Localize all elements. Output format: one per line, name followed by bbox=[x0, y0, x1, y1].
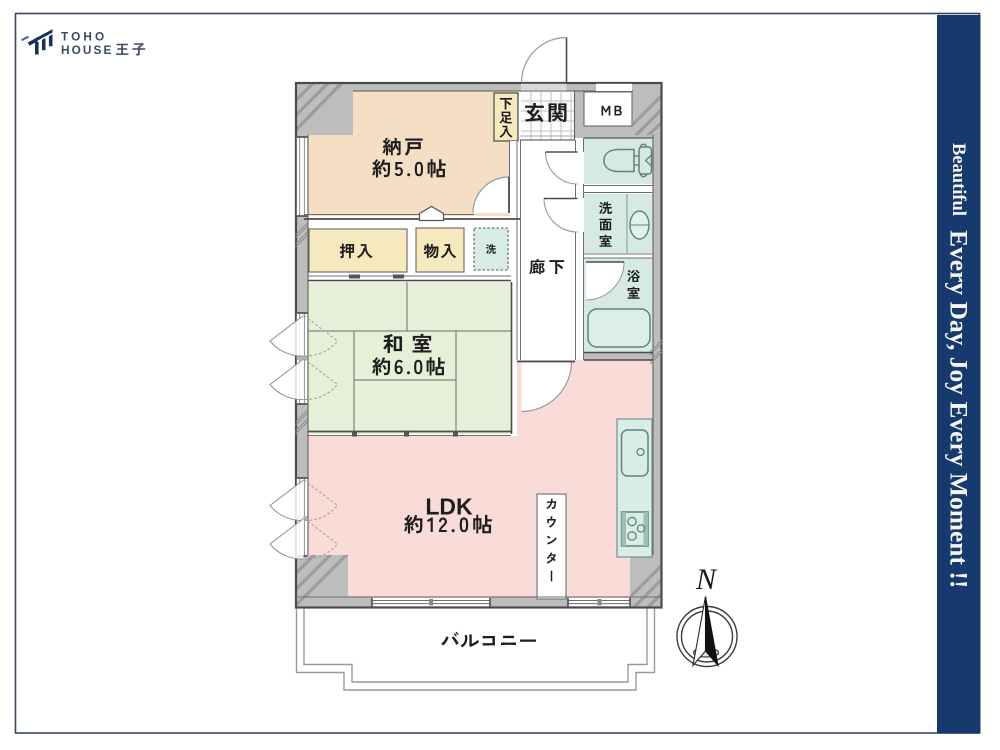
svg-text:Every Day, Joy Every Moment !!: Every Day, Joy Every Moment !! bbox=[945, 230, 974, 588]
svg-text:TOHO: TOHO bbox=[61, 30, 107, 44]
svg-text:Beautiful: Beautiful bbox=[948, 143, 968, 216]
svg-text:LDK: LDK bbox=[425, 494, 473, 520]
svg-text:N: N bbox=[695, 563, 718, 596]
svg-text:HOUSE: HOUSE bbox=[61, 43, 113, 57]
